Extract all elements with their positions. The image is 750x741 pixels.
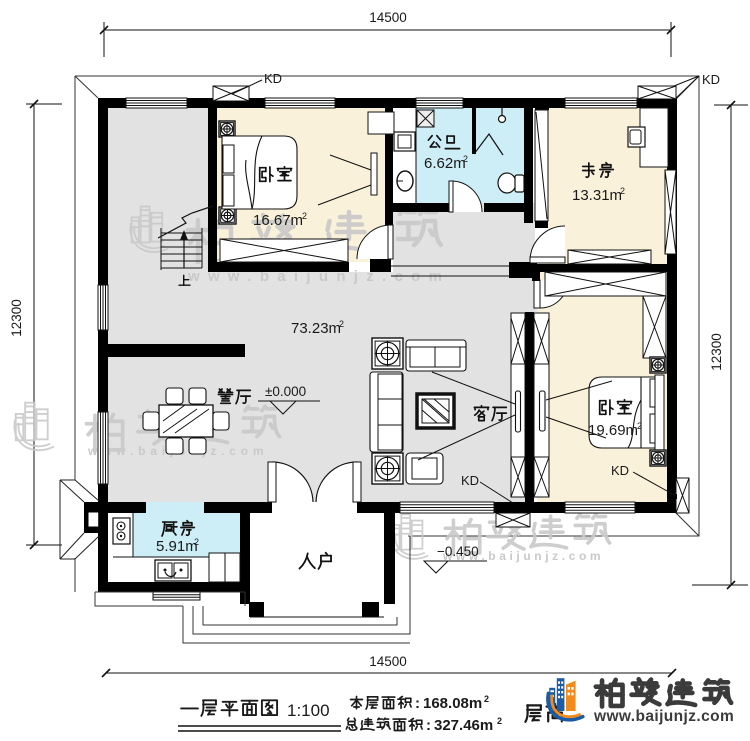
svg-text::: : xyxy=(415,695,420,712)
svg-text:168.08m: 168.08m xyxy=(423,695,482,712)
svg-text:KD: KD xyxy=(461,473,479,488)
svg-text:2: 2 xyxy=(302,211,307,221)
svg-text:www.baijunjz.com: www.baijunjz.com xyxy=(593,708,734,725)
svg-text:2: 2 xyxy=(339,319,344,329)
svg-text:KD: KD xyxy=(264,71,282,86)
svg-text::: : xyxy=(426,717,431,734)
svg-text:2: 2 xyxy=(497,716,502,726)
svg-text:12300: 12300 xyxy=(9,299,24,337)
svg-text:12300: 12300 xyxy=(709,333,724,371)
svg-text:1:100: 1:100 xyxy=(287,701,330,720)
svg-text:2: 2 xyxy=(637,421,642,431)
svg-text:2: 2 xyxy=(484,694,489,704)
svg-text:13.31m: 13.31m xyxy=(572,187,622,204)
svg-text:5.91m: 5.91m xyxy=(156,538,198,555)
svg-text:14500: 14500 xyxy=(369,654,407,669)
svg-text:KD: KD xyxy=(611,463,629,478)
svg-text:−0.450: −0.450 xyxy=(437,544,479,559)
svg-text:14500: 14500 xyxy=(369,10,407,25)
svg-text:KD: KD xyxy=(702,72,720,87)
svg-text:327.46m: 327.46m xyxy=(434,717,493,734)
svg-text:2: 2 xyxy=(620,186,625,196)
svg-text:6.62m: 6.62m xyxy=(424,155,466,172)
svg-text:2: 2 xyxy=(463,154,468,164)
svg-text:±0.000: ±0.000 xyxy=(265,384,306,399)
svg-text:19.69m: 19.69m xyxy=(588,422,638,439)
svg-text:73.23m: 73.23m xyxy=(291,320,341,337)
svg-text:16.67m: 16.67m xyxy=(253,212,303,229)
svg-text:2: 2 xyxy=(194,537,199,547)
